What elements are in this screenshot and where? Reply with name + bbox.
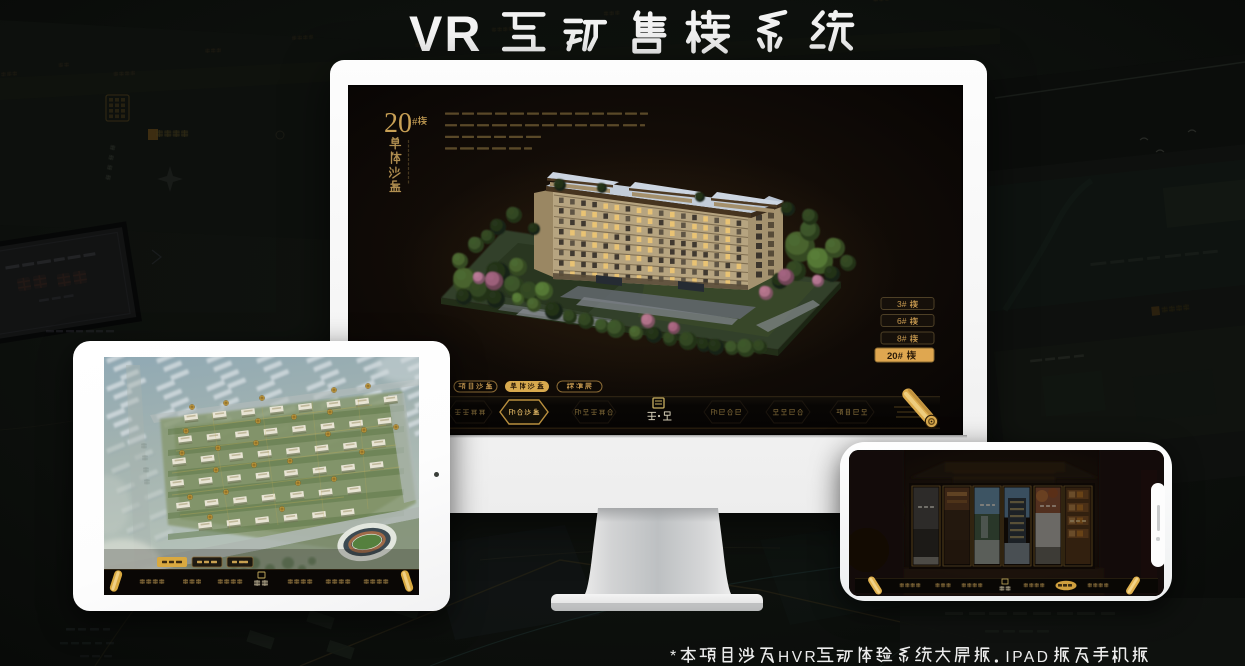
svg-text:VR: VR [409,6,482,60]
svg-text:IPAD: IPAD [1005,649,1050,666]
svg-text:3#: 3# [897,299,907,309]
svg-text:#: # [412,116,418,128]
svg-text:20#: 20# [887,351,904,362]
svg-text:20: 20 [384,108,412,139]
svg-text:8#: 8# [897,334,907,344]
svg-text:6#: 6# [897,316,907,326]
svg-text:*: * [670,648,676,665]
svg-text:HVR: HVR [778,649,818,666]
